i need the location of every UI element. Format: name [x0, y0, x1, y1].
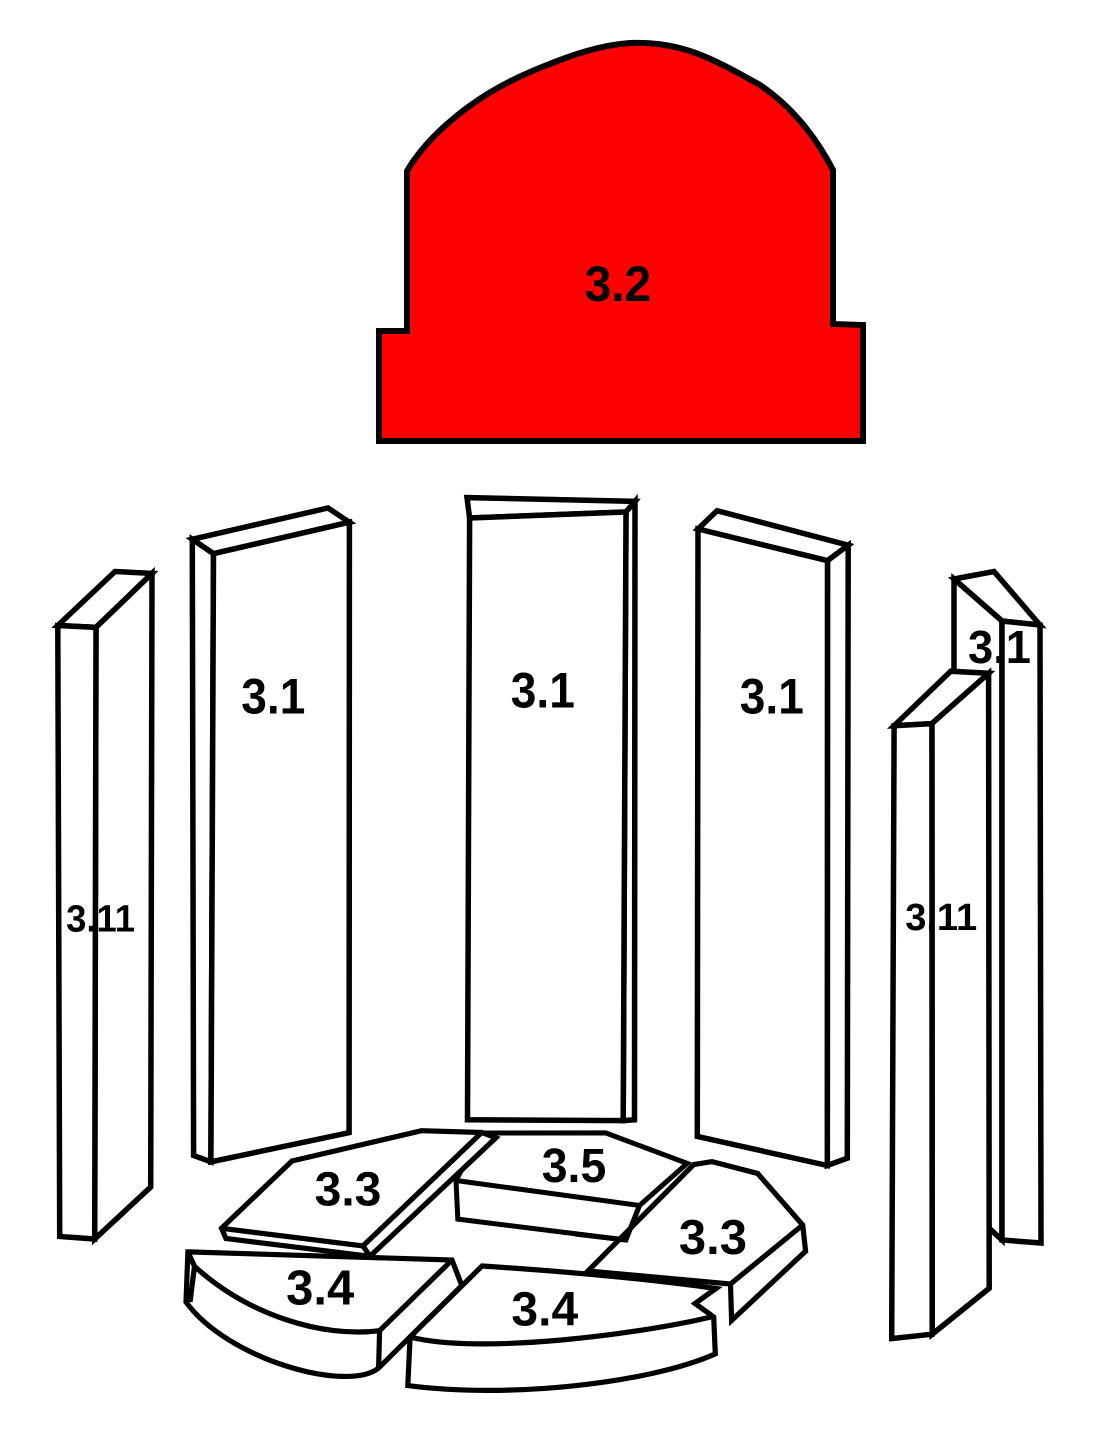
svg-text:3.1: 3.1 [740, 669, 804, 725]
svg-text:3.11: 3.11 [905, 897, 977, 939]
svg-text:3.11: 3.11 [66, 898, 135, 940]
svg-text:3.1: 3.1 [241, 668, 305, 724]
svg-text:3.5: 3.5 [542, 1140, 607, 1193]
svg-text:3.1: 3.1 [968, 621, 1031, 673]
svg-text:3.3: 3.3 [315, 1164, 382, 1217]
svg-text:3.4: 3.4 [511, 1284, 578, 1337]
svg-text:3.1: 3.1 [511, 662, 575, 718]
svg-text:3.4: 3.4 [286, 1261, 354, 1315]
svg-text:3.2: 3.2 [585, 256, 652, 312]
svg-text:3.3: 3.3 [679, 1211, 747, 1265]
